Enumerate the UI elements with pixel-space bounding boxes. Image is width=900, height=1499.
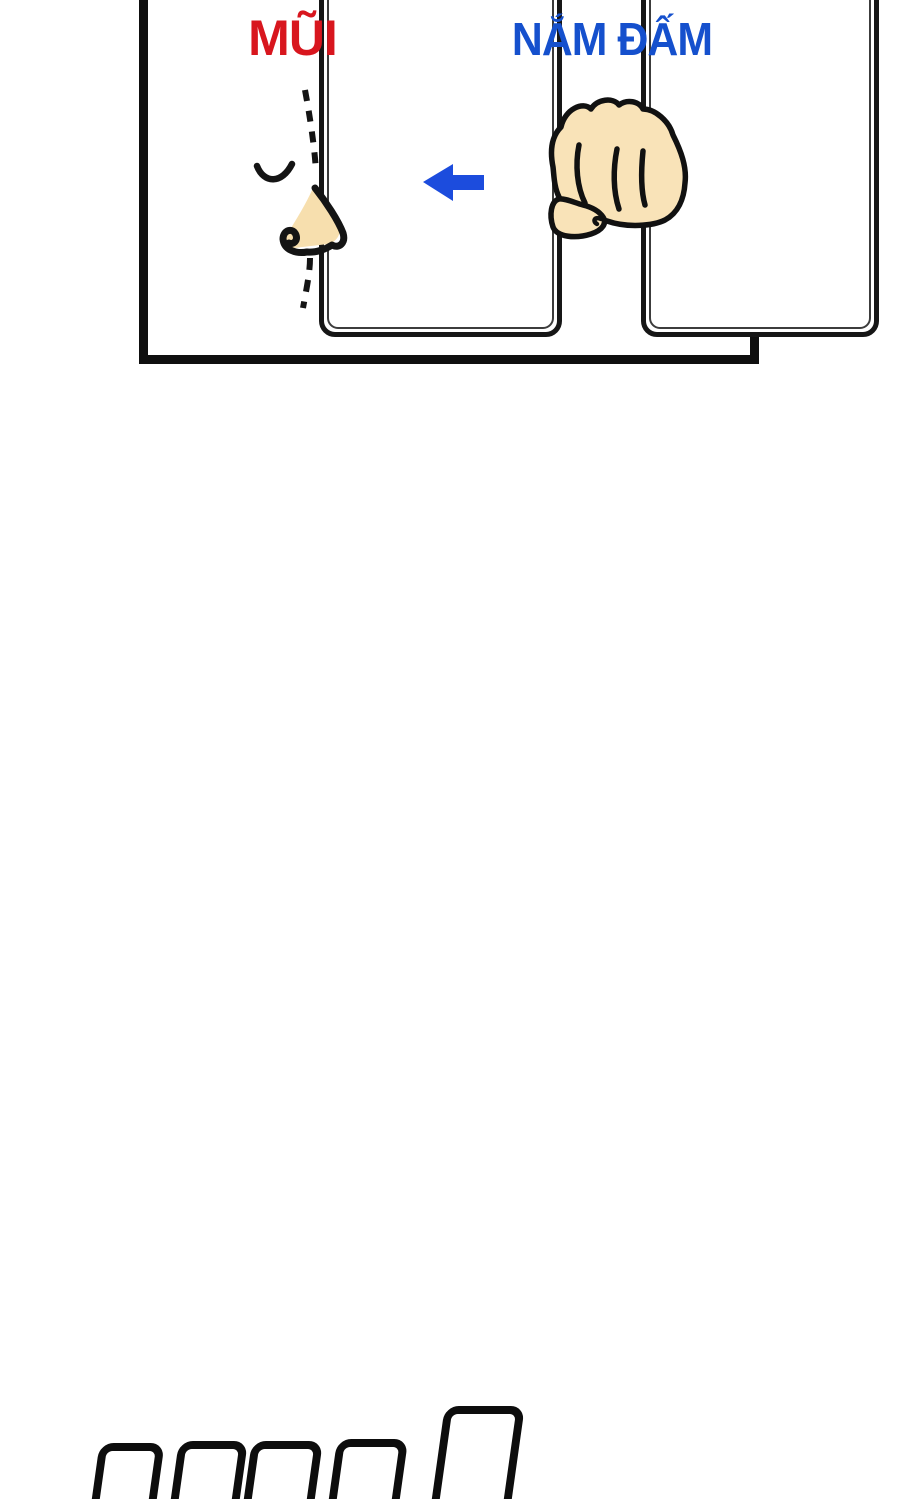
card-fist-label: NẮM ĐẤM [501,16,722,62]
sfx-rect-2 [172,1445,243,1499]
sfx-rect-5 [433,1410,520,1499]
closed-eye-line [257,164,292,179]
face-profile-dash-top [305,90,316,172]
nose-profile-illustration [240,78,370,318]
comic-page: MŨI NẮM ĐẤM [0,0,900,1499]
card-nose-label: MŨI [171,13,414,63]
sfx-rect-3 [245,1445,318,1499]
arrow-left-shape [423,164,484,201]
face-profile-dash-bottom [303,258,310,308]
sfx-outline-shapes [55,1398,555,1499]
sfx-rect-4 [330,1443,404,1499]
sfx-rect-1 [93,1447,160,1499]
arrow-left-icon [420,161,486,203]
fist-illustration [535,95,695,255]
